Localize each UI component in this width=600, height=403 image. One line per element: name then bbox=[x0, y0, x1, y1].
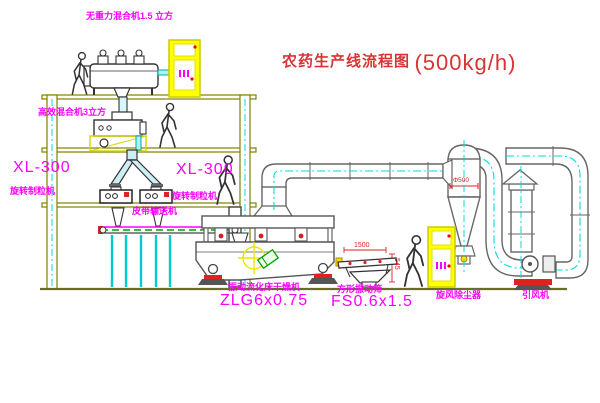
label-dryer-name: 振动流化床干燥机 bbox=[228, 283, 300, 292]
diagram-title: 农药生产线流程图 (500kg/h) bbox=[282, 50, 516, 76]
label-xl-center-name: 旋转制粒机 bbox=[172, 192, 217, 201]
vibrating-sieve bbox=[336, 247, 397, 287]
label-xl-center-model: XL-300 bbox=[176, 162, 234, 178]
gravity-free-mixer bbox=[84, 50, 175, 113]
control-cabinet-right bbox=[428, 227, 455, 287]
dim-sieve-height: 545 bbox=[393, 258, 400, 270]
title-capacity: (500kg/h) bbox=[414, 50, 516, 75]
y-feed-pipe bbox=[109, 150, 163, 187]
label-top-mixer: 无重力混合机1.5 立方 bbox=[86, 12, 173, 21]
granulator-center bbox=[140, 187, 172, 203]
label-dryer-model: ZLG6x0.75 bbox=[220, 293, 308, 309]
main-exhaust-duct bbox=[254, 162, 452, 216]
flow-diagram: 农药生产线流程图 (500kg/h) 无重力混合机1.5 立方 高效混合机3立方… bbox=[0, 0, 600, 403]
control-cabinet-top bbox=[169, 40, 200, 97]
dim-cyclone-dia: Φ500 bbox=[453, 178, 469, 185]
label-cyclone: 旋风除尘器 bbox=[436, 291, 481, 300]
person-figure bbox=[160, 103, 176, 147]
granulator-left bbox=[100, 187, 132, 203]
fan-base-red bbox=[514, 279, 552, 285]
label-sieve-model: FS0.6x1.5 bbox=[331, 294, 413, 310]
label-xl-left-model: XL-300 bbox=[13, 160, 71, 176]
label-fan: 引风机 bbox=[522, 291, 549, 300]
dim-sieve-length: 1500 bbox=[354, 242, 370, 249]
label-belt-conveyor: 皮带输送机 bbox=[132, 207, 177, 216]
fluid-bed-dryer bbox=[196, 216, 338, 285]
person-figure bbox=[405, 236, 423, 286]
high-efficiency-mixer bbox=[90, 112, 146, 151]
label-mid-mixer: 高效混合机3立方 bbox=[38, 108, 106, 117]
label-xl-left-name: 旋转制粒机 bbox=[10, 187, 55, 196]
stack-rain-cap bbox=[503, 170, 537, 184]
title-cn: 农药生产线流程图 bbox=[282, 53, 410, 70]
